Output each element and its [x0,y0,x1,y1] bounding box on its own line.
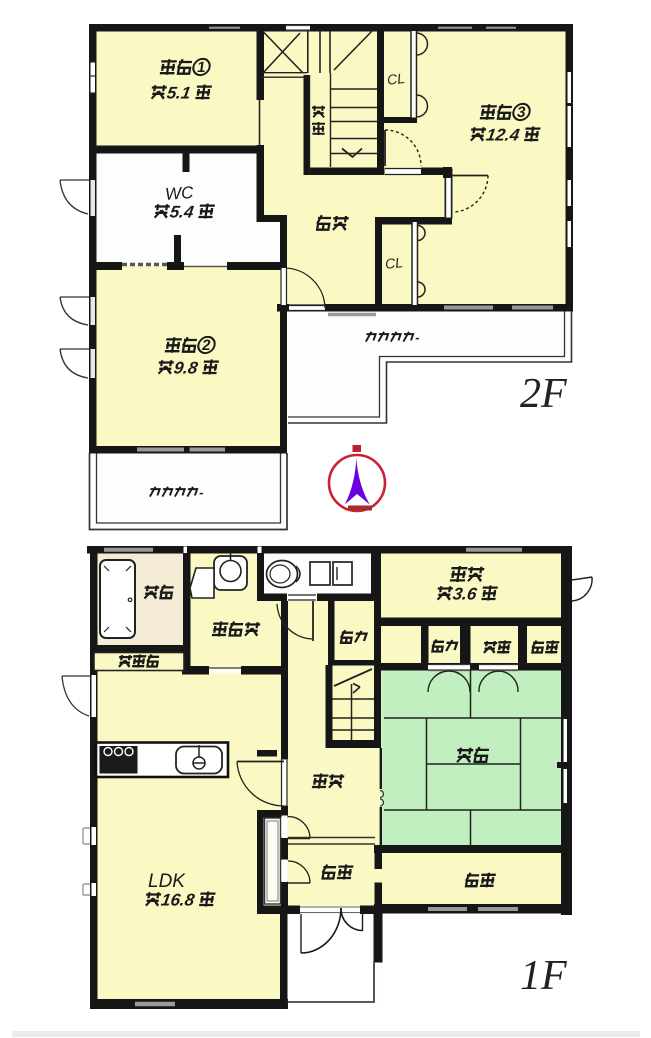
svg-text:WC: WC [164,183,194,204]
svg-text:5.1: 5.1 [165,83,192,102]
svg-text:16.8: 16.8 [160,890,197,909]
svg-text:CL: CL [386,70,405,88]
svg-text:2F: 2F [520,371,567,417]
svg-text:LDK: LDK [148,871,186,892]
svg-text:5.4: 5.4 [168,202,195,221]
svg-text:CL: CL [384,254,403,272]
svg-text:3.6: 3.6 [451,584,478,603]
svg-text:9.8: 9.8 [172,358,199,377]
svg-text:1F: 1F [520,953,567,999]
svg-text:12.4: 12.4 [485,125,522,144]
